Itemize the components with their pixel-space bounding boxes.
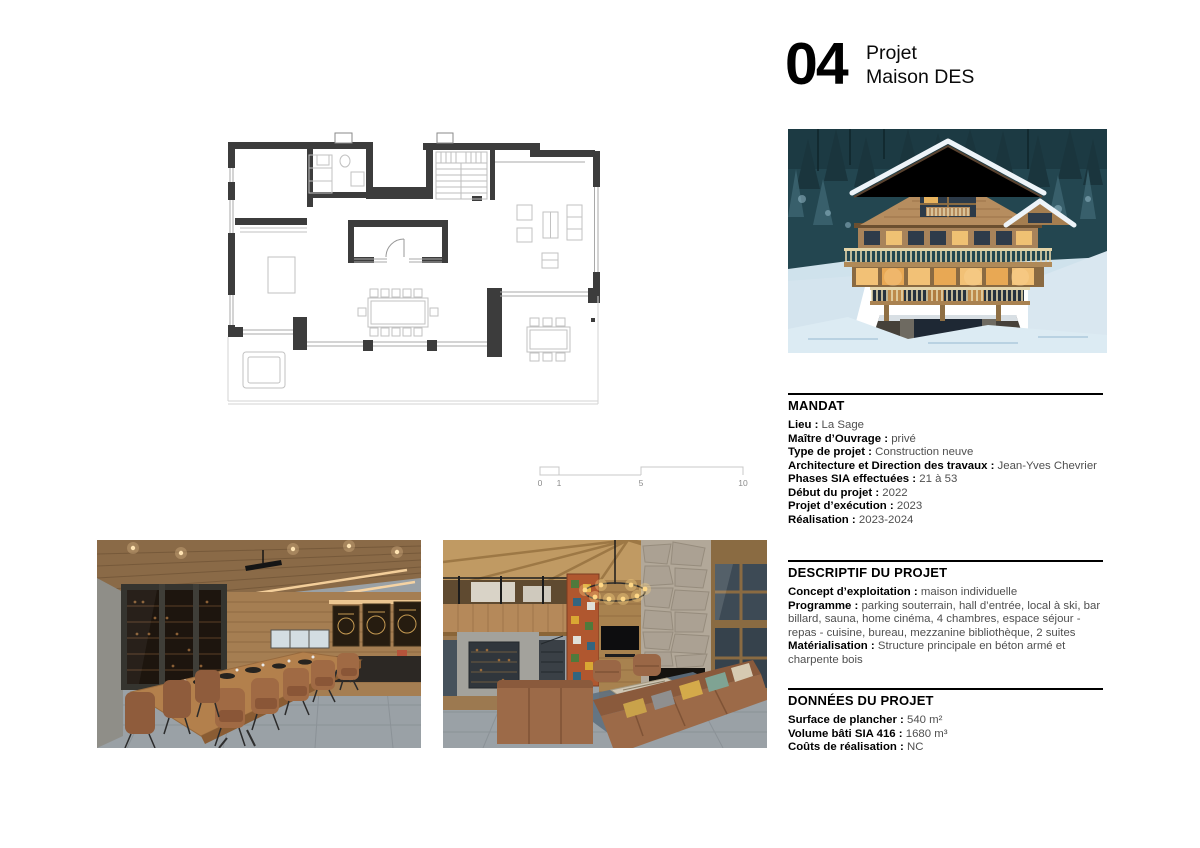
field-row: Début du projet : 2022 <box>788 487 1103 501</box>
field-label: Coûts de réalisation : <box>788 741 904 753</box>
field-label: Type de projet : <box>788 446 872 458</box>
descriptif-rows: Concept d’exploitation : maison individu… <box>788 586 1103 667</box>
field-row: Phases SIA effectuées : 21 à 53 <box>788 473 1103 487</box>
field-row: Lieu : La Sage <box>788 419 1103 433</box>
photo-exterior <box>788 129 1107 353</box>
field-row: Concept d’exploitation : maison individu… <box>788 586 1103 600</box>
field-label: Concept d’exploitation : <box>788 586 918 598</box>
photo-living <box>443 540 767 748</box>
living-room-illustration <box>443 540 767 748</box>
field-value: maison individuelle <box>921 586 1017 598</box>
mandat-rows: Lieu : La Sage Maître d’Ouvrage : privé … <box>788 419 1103 527</box>
project-number: 04 <box>785 34 847 94</box>
section-donnees: DONNÉES DU PROJET Surface de plancher : … <box>788 688 1103 755</box>
field-label: Architecture et Direction des travaux : <box>788 460 994 472</box>
field-label: Projet d’exécution : <box>788 500 894 512</box>
field-label: Phases SIA effectuées : <box>788 473 916 485</box>
field-value: privé <box>891 433 916 445</box>
field-value: Jean-Yves Chevrier <box>998 460 1097 472</box>
portfolio-page: 04 Projet Maison DES <box>0 0 1200 848</box>
field-label: Programme : <box>788 600 858 612</box>
photo-dining <box>97 540 421 748</box>
section-mandat: MANDAT Lieu : La Sage Maître d’Ouvrage :… <box>788 393 1103 527</box>
scale-tick-0: 0 <box>538 478 543 488</box>
scale-bar-svg: 0 1 5 10 <box>536 458 748 490</box>
scale-tick-10: 10 <box>738 478 748 488</box>
field-row: Programme : parking souterrain, hall d’e… <box>788 600 1103 641</box>
scale-tick-1: 1 <box>557 478 562 488</box>
field-row: Projet d’exécution : 2023 <box>788 500 1103 514</box>
project-title-line1: Projet <box>866 42 974 66</box>
field-row: Type de projet : Construction neuve <box>788 446 1103 460</box>
field-row: Volume bâti SIA 416 : 1680 m³ <box>788 728 1103 742</box>
field-label: Volume bâti SIA 416 : <box>788 728 903 740</box>
section-descriptif: DESCRIPTIF DU PROJET Concept d’exploitat… <box>788 560 1103 667</box>
field-value: Construction neuve <box>875 446 973 458</box>
field-value: 2023 <box>897 500 922 512</box>
field-value: NC <box>907 741 923 753</box>
project-title-line2: Maison DES <box>866 66 974 90</box>
field-row: Surface de plancher : 540 m² <box>788 714 1103 728</box>
field-label: Maître d’Ouvrage : <box>788 433 888 445</box>
field-value: 2022 <box>882 487 907 499</box>
field-row: Maître d’Ouvrage : privé <box>788 433 1103 447</box>
field-value: 2023-2024 <box>859 514 913 526</box>
scale-tick-5: 5 <box>639 478 644 488</box>
floor-plan-drawing <box>225 130 600 412</box>
section-title: DESCRIPTIF DU PROJET <box>788 565 1103 580</box>
field-value: 1680 m³ <box>906 728 948 740</box>
field-row: Matérialisation : Structure principale e… <box>788 640 1103 667</box>
scale-bar: 0 1 5 10 <box>536 458 748 490</box>
field-row: Réalisation : 2023-2024 <box>788 514 1103 528</box>
dining-room-illustration <box>97 540 421 748</box>
field-row: Coûts de réalisation : NC <box>788 741 1103 755</box>
field-value: 540 m² <box>907 714 942 726</box>
field-value: 21 à 53 <box>919 473 957 485</box>
section-title: MANDAT <box>788 398 1103 413</box>
field-label: Lieu : <box>788 419 818 431</box>
floor-plan-svg <box>225 130 600 412</box>
field-value: La Sage <box>822 419 864 431</box>
field-label: Début du projet : <box>788 487 879 499</box>
field-row: Architecture et Direction des travaux : … <box>788 460 1103 474</box>
field-label: Réalisation : <box>788 514 856 526</box>
section-title: DONNÉES DU PROJET <box>788 693 1103 708</box>
donnees-rows: Surface de plancher : 540 m² Volume bâti… <box>788 714 1103 755</box>
field-label: Matérialisation : <box>788 640 875 652</box>
field-label: Surface de plancher : <box>788 714 904 726</box>
project-title: Projet Maison DES <box>866 42 974 89</box>
chalet-exterior-illustration <box>788 129 1107 353</box>
